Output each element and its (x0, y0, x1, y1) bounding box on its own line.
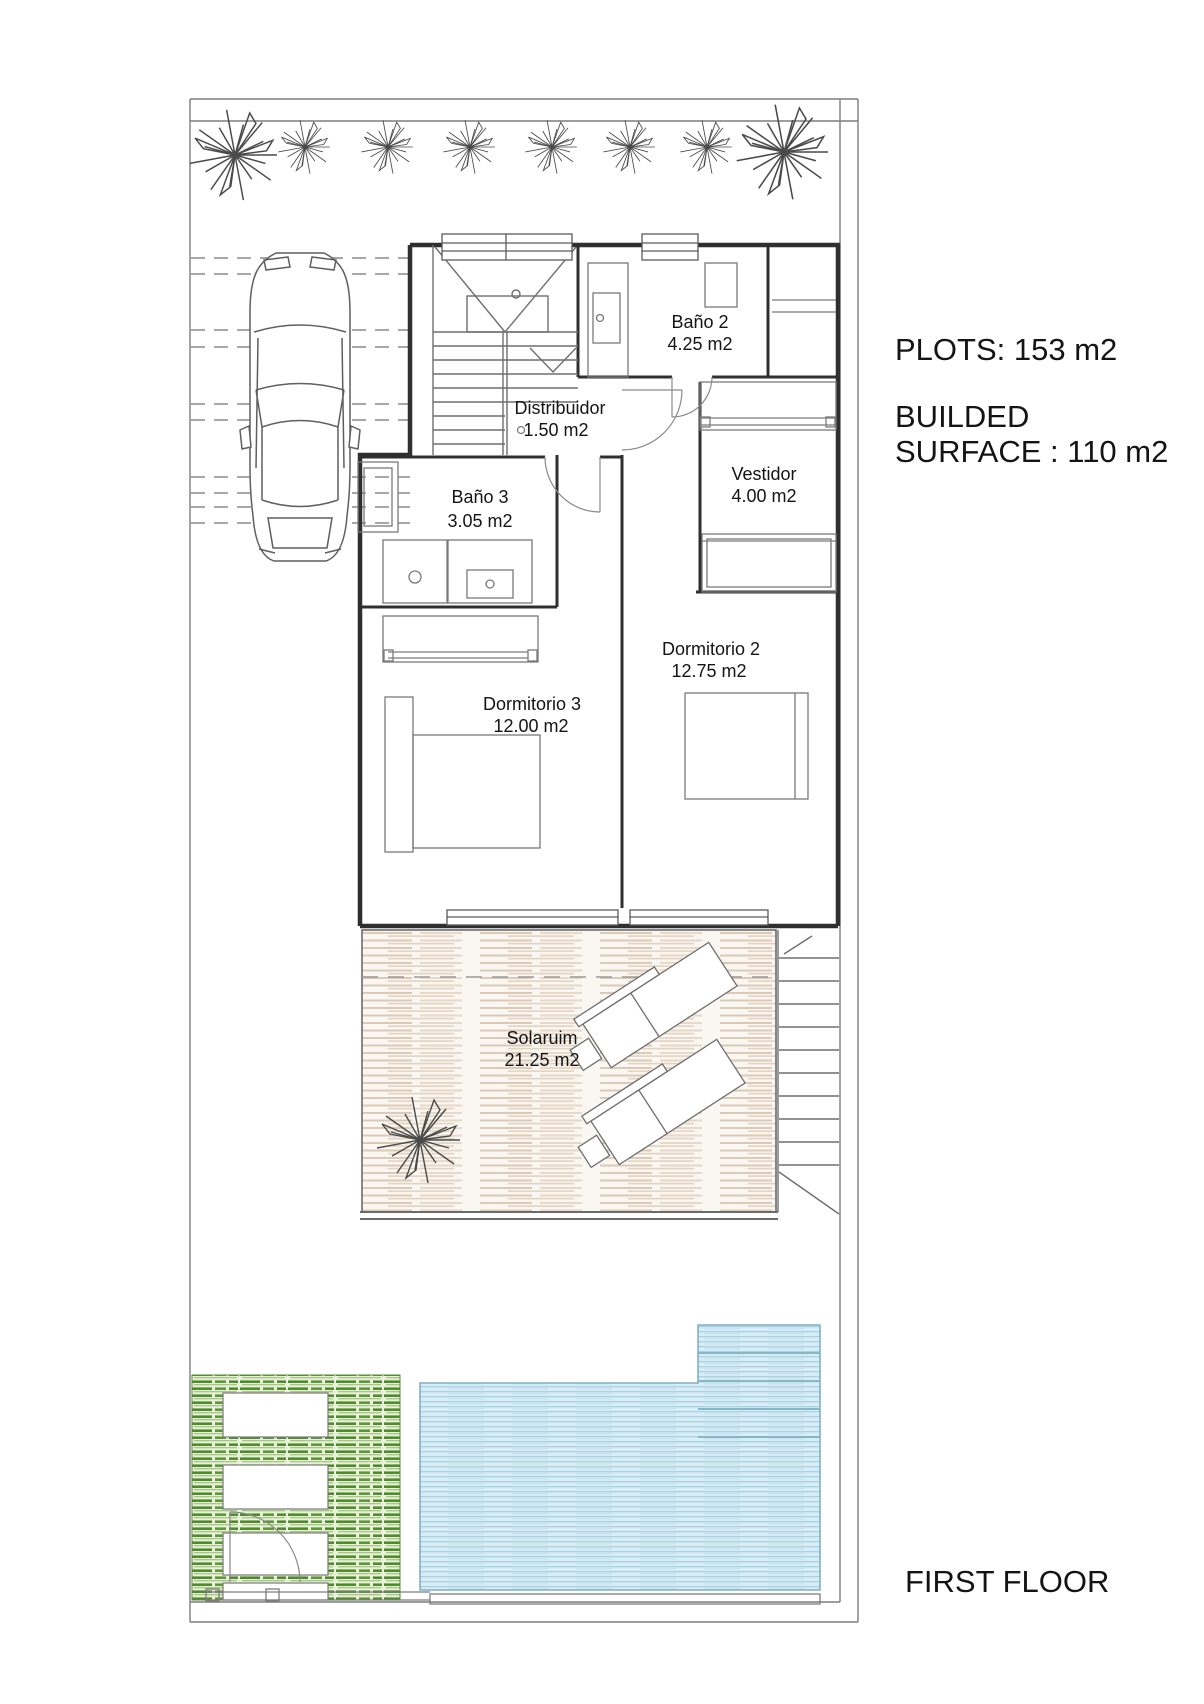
plots-annotation: PLOTS: 153 m2 (895, 332, 1117, 367)
paving-slab (223, 1533, 328, 1575)
car-top-view (240, 253, 360, 561)
wardrobe-vestidor-top (700, 382, 836, 430)
swimming-pool (420, 1325, 820, 1590)
wardrobe-dormitorio3 (383, 616, 538, 662)
floor-plan-drawing: Baño 2 4.25 m2 Distribuidor 1.50 m2 Baño… (0, 0, 1204, 1704)
floor-title: FIRST FLOOR (905, 1564, 1109, 1599)
sink-vanity (448, 540, 532, 603)
palm-tree-icon (190, 110, 277, 200)
room-label-vestidor-area: 4.00 m2 (731, 486, 796, 506)
room-label-distribuidor-name: Distribuidor (514, 398, 605, 418)
room-label-dormitorio2-area: 12.75 m2 (671, 661, 746, 681)
room-label-bano2-area: 4.25 m2 (667, 334, 732, 354)
door-bano3 (545, 457, 600, 512)
palm-tree-icon (525, 120, 576, 173)
paving-slab (223, 1465, 328, 1509)
room-label-distribuidor-area: 1.50 m2 (523, 420, 588, 440)
room-label-bano3-name: Baño 3 (451, 487, 508, 507)
palm-tree-icon (737, 105, 828, 200)
closet-shaft (705, 263, 737, 307)
room-label-dormitorio2-name: Dormitorio 2 (662, 639, 760, 659)
wardrobe-vestidor-bottom (702, 534, 836, 592)
room-label-dormitorio3-name: Dormitorio 3 (483, 694, 581, 714)
palm-tree-icon (361, 120, 412, 173)
room-label-solarium-area: 21.25 m2 (504, 1050, 579, 1070)
room-label-bano2-name: Baño 2 (671, 312, 728, 332)
palm-tree-icon (278, 120, 329, 173)
closet-shelves (772, 300, 836, 312)
window (442, 234, 572, 260)
trees-row (190, 105, 828, 200)
window (642, 234, 698, 260)
palm-tree-icon (443, 120, 494, 173)
solarium-deck (360, 930, 778, 1219)
furniture (383, 382, 836, 852)
bano3-fixtures (358, 462, 532, 603)
lawn-area (192, 1375, 400, 1600)
shower-bano2 (588, 263, 628, 377)
door-dormitorio2 (622, 390, 682, 450)
floor-plan-page: Baño 2 4.25 m2 Distribuidor 1.50 m2 Baño… (0, 0, 1204, 1704)
room-label-vestidor-name: Vestidor (731, 464, 796, 484)
interior-partitions (360, 245, 838, 908)
room-label-dormitorio3-area: 12.00 m2 (493, 716, 568, 736)
external-stairs (778, 930, 839, 1214)
paving-slab (223, 1393, 328, 1437)
palm-tree-icon (603, 120, 654, 173)
palm-tree-icon (680, 120, 731, 173)
room-label-solarium-name: Solaruim (506, 1028, 577, 1048)
builded-annotation-line2: SURFACE : 110 m2 (895, 434, 1168, 469)
bed-dormitorio2 (685, 693, 808, 799)
room-label-bano3-area: 3.05 m2 (447, 511, 512, 531)
house-exterior-walls (360, 245, 838, 926)
builded-annotation-line1: BUILDED (895, 399, 1029, 434)
